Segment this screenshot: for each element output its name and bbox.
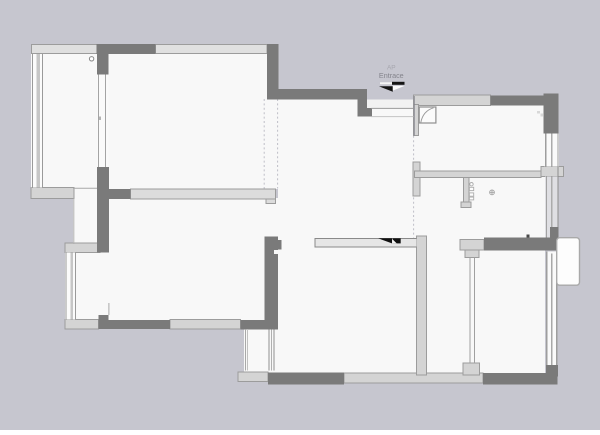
- svg-text:Entrace: Entrace: [379, 71, 404, 80]
